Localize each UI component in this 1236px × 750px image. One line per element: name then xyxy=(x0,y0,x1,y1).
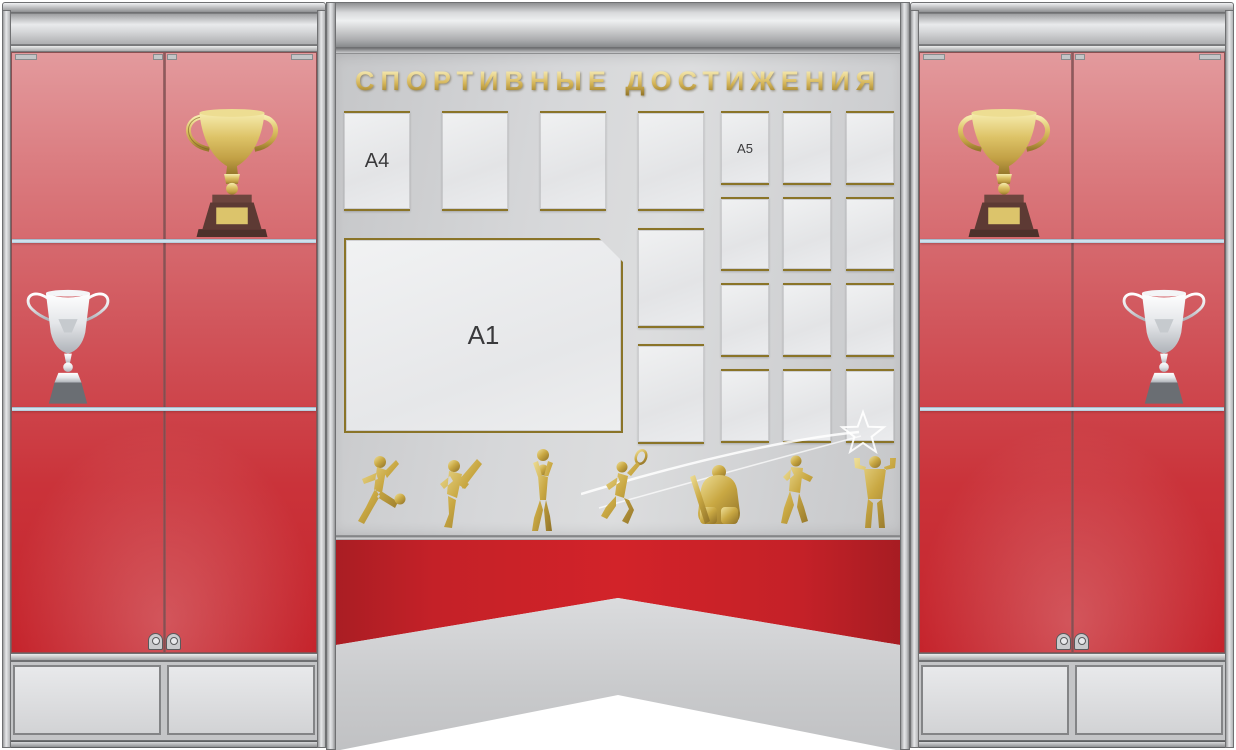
cabinet-middle-rail xyxy=(9,653,319,661)
achievements-board-section: СПОРТИВНЫЕ ДОСТИЖЕНИЯ A1 A4A5 xyxy=(326,2,910,750)
cupboard-door[interactable] xyxy=(167,665,315,735)
center-header-panel xyxy=(330,2,906,48)
cabinet-side-rail xyxy=(317,10,326,748)
door-clip xyxy=(1075,54,1085,60)
glass-display-doors[interactable] xyxy=(919,52,1225,653)
glass-shelf xyxy=(920,239,1224,243)
cabinet-side-rail xyxy=(910,10,919,748)
hockey-goalie-icon xyxy=(690,465,740,524)
photo-pocket-a5 xyxy=(846,369,894,443)
sports-achievements-display-stand: СПОРТИВНЫЕ ДОСТИЖЕНИЯ A1 A4A5 xyxy=(0,0,1236,750)
achievements-board: СПОРТИВНЫЕ ДОСТИЖЕНИЯ A1 A4A5 xyxy=(330,53,906,536)
door-lock[interactable] xyxy=(148,633,163,650)
cabinet-header-panel xyxy=(9,13,319,45)
cupboard-door[interactable] xyxy=(1075,665,1223,735)
photo-pocket-a5 xyxy=(721,197,769,271)
door-divider xyxy=(163,53,166,652)
cabinet-side-rail xyxy=(1225,10,1234,748)
sport-silhouettes-row xyxy=(341,449,897,533)
photo-pocket-a4 xyxy=(638,228,704,328)
photo-pocket-a4 xyxy=(638,111,704,211)
door-clip xyxy=(1061,54,1071,60)
photo-pocket-a5 xyxy=(783,369,831,443)
cabinet-lower-cupboard xyxy=(917,661,1227,741)
photo-pocket-a5 xyxy=(783,111,831,185)
bodybuilder-icon xyxy=(854,456,896,528)
trophy-cabinet-right xyxy=(910,2,1234,748)
badminton-player-icon xyxy=(601,449,648,524)
door-clip xyxy=(15,54,37,60)
glass-shelf xyxy=(12,407,316,411)
door-divider xyxy=(1071,53,1074,652)
door-lock[interactable] xyxy=(1074,633,1089,650)
photo-pocket-a5 xyxy=(846,283,894,357)
boxer-icon xyxy=(781,456,813,525)
photo-pocket-a4: A4 xyxy=(344,111,410,211)
cupboard-door[interactable] xyxy=(13,665,161,735)
door-clip xyxy=(1199,54,1221,60)
trophy-cabinet-left xyxy=(2,2,326,748)
pocket-size-label: A4 xyxy=(365,150,389,173)
volleyball-player-icon xyxy=(532,449,553,531)
pocket-size-label: A1 xyxy=(468,320,500,351)
cabinet-top-rail xyxy=(9,45,319,52)
door-clip xyxy=(923,54,945,60)
gold-trophy-cup xyxy=(954,105,1054,239)
cabinet-middle-rail xyxy=(917,653,1227,661)
cabinet-side-rail xyxy=(2,10,11,748)
glass-display-doors[interactable] xyxy=(11,52,317,653)
cupboard-door[interactable] xyxy=(921,665,1069,735)
photo-pocket-a4 xyxy=(442,111,508,211)
door-lock[interactable] xyxy=(1056,633,1071,650)
karate-kick-icon xyxy=(440,459,482,528)
photo-pocket-a5 xyxy=(721,369,769,443)
glass-shelf xyxy=(920,407,1224,411)
silver-trophy-cup xyxy=(1116,285,1212,407)
cabinet-header-panel xyxy=(917,13,1227,45)
bottom-banner xyxy=(330,536,906,750)
pocket-size-label: A5 xyxy=(737,141,753,156)
board-title: СПОРТИВНЫЕ ДОСТИЖЕНИЯ xyxy=(331,66,905,97)
cabinet-base xyxy=(7,741,321,748)
banner-top-frame xyxy=(330,536,906,540)
cabinet-top-rail xyxy=(917,45,1227,52)
cabinet-top-cap xyxy=(2,2,326,13)
center-post-left xyxy=(326,2,336,750)
photo-pocket-a5 xyxy=(846,197,894,271)
door-lock[interactable] xyxy=(166,633,181,650)
glass-shelf xyxy=(12,239,316,243)
photo-pocket-a4 xyxy=(638,344,704,444)
photo-pocket-a4 xyxy=(540,111,606,211)
cabinet-base xyxy=(915,741,1229,748)
photo-pocket-a5 xyxy=(783,197,831,271)
gold-trophy-cup xyxy=(182,105,282,239)
photo-pocket-a5 xyxy=(783,283,831,357)
door-clip xyxy=(153,54,163,60)
football-player-icon xyxy=(358,456,406,524)
cabinet-top-cap xyxy=(910,2,1234,13)
door-clip xyxy=(291,54,313,60)
cabinet-lower-cupboard xyxy=(9,661,319,741)
photo-pocket-a5 xyxy=(721,283,769,357)
door-clip xyxy=(167,54,177,60)
photo-pocket-a5 xyxy=(846,111,894,185)
center-post-right xyxy=(900,2,910,750)
silver-trophy-cup xyxy=(20,285,116,407)
photo-pocket-a5: A5 xyxy=(721,111,769,185)
photo-pocket-a1: A1 xyxy=(344,238,623,433)
